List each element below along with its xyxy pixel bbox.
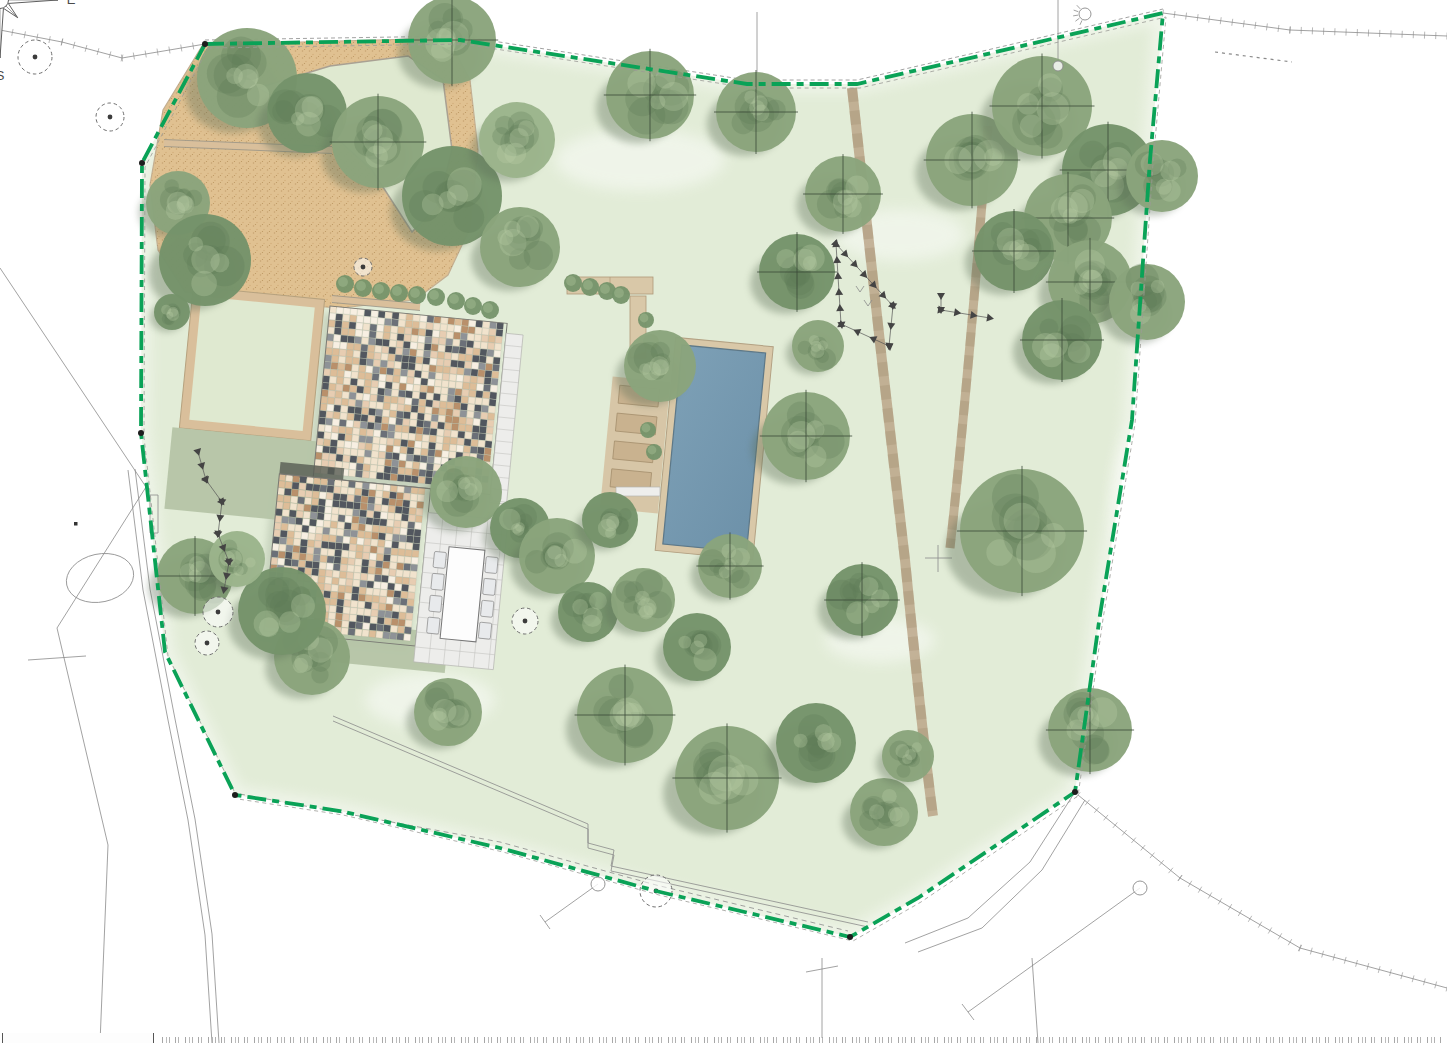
site-plan-page: Nord E S O [0,0,1447,1043]
chair [485,556,499,573]
compass-label-south: S [0,68,5,83]
compass-label-east: E [67,0,76,7]
tree-symbol-outline [96,103,124,131]
title-block-corner [2,1033,154,1043]
stepping-pad [616,487,660,496]
site-plan-canvas: Nord E S O [0,0,1447,1043]
chair [433,551,447,568]
chair [431,573,445,590]
illegible-notes-strip [162,1037,1443,1043]
tree-symbol-outline [354,258,372,276]
chair [483,578,497,595]
chair [478,622,492,639]
tree-symbol-outline [512,608,538,634]
chair [427,617,441,634]
cut-off-title-block [0,1033,1447,1043]
chair [480,600,494,617]
tree-symbol-outline [195,631,219,655]
tree-symbol-outline [18,40,52,74]
utility-lamp-icon [1073,5,1091,25]
tree-symbol-outline [203,597,233,627]
chair [429,595,443,612]
